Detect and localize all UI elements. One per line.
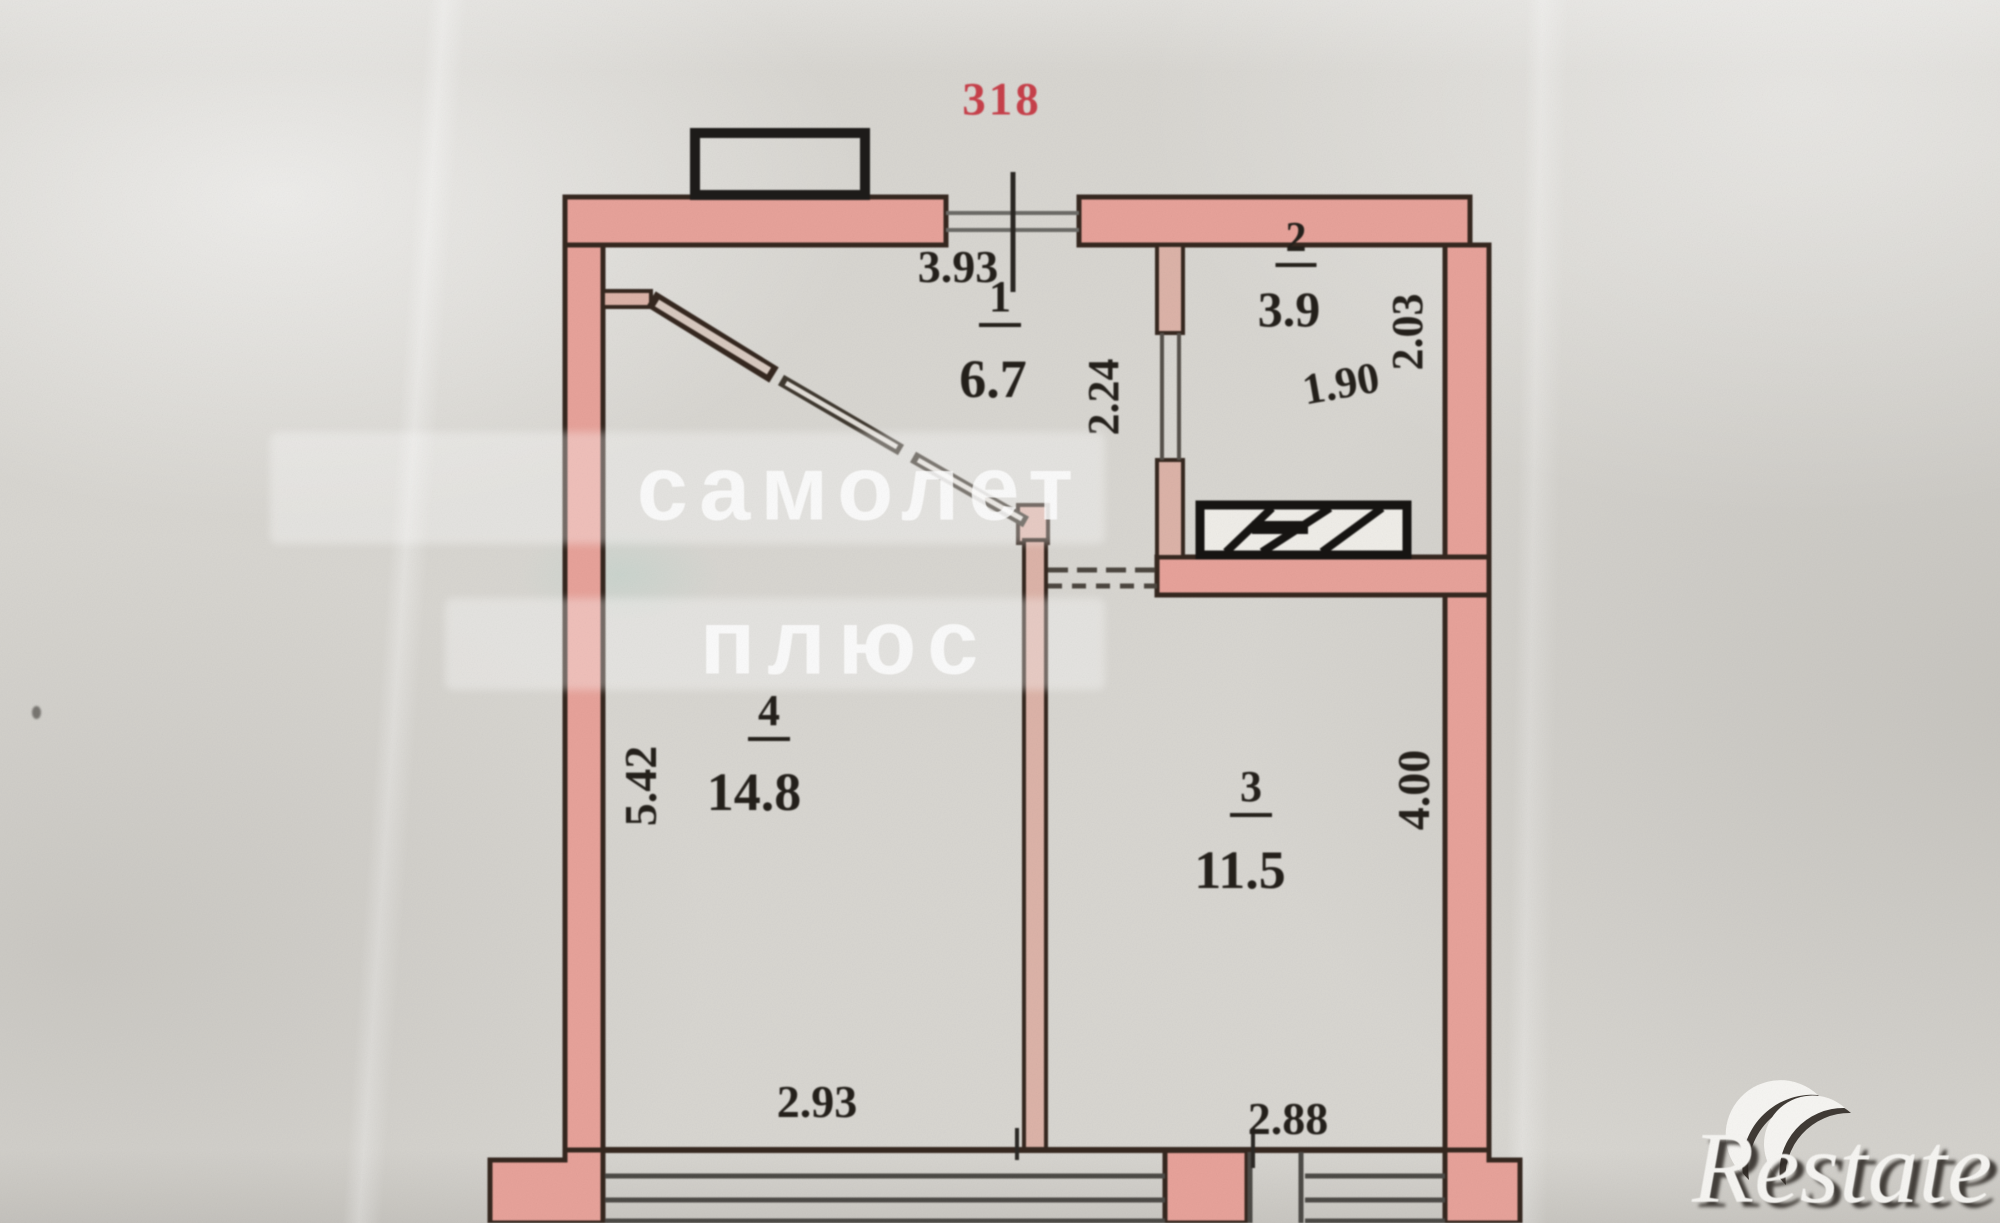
wall-top-left — [565, 197, 946, 245]
room4-area: 14.8 — [707, 765, 802, 819]
room4-number: 4 — [748, 689, 790, 741]
wall-left — [565, 245, 603, 1150]
balcony-door-room3 — [1250, 1152, 1301, 1223]
watermark-samolet-line1: самолет — [637, 437, 1083, 542]
watermark-samolet-line2: плюс — [700, 591, 991, 696]
apartment-number-label: 318 — [962, 77, 1042, 124]
room3-door — [1048, 570, 1157, 586]
diagonal-wall — [651, 299, 774, 375]
watermark-restate: Restate — [1692, 1118, 1992, 1220]
wall-hall-bath-upper — [1157, 245, 1183, 333]
room3-area: 11.5 — [1194, 843, 1286, 897]
dim-room3-width: 2.88 — [1248, 1096, 1329, 1142]
balcony-outline — [695, 133, 865, 195]
dim-room3-depth: 4.00 — [1391, 750, 1437, 831]
dim-room2-depth: 2.03 — [1386, 294, 1430, 371]
wall-room4-top — [603, 291, 651, 307]
window-room3 — [1305, 1176, 1445, 1221]
wall-under-bathroom — [1157, 557, 1489, 595]
vent-shaft — [1200, 505, 1407, 555]
room2-number: 2 — [1276, 217, 1317, 267]
window-room4 — [605, 1176, 1165, 1221]
floorplan-photo: 318 3.93 1 6.7 2.24 2 3.9 1.90 2.03 3 11… — [0, 0, 2000, 1223]
bottom-right-pier — [1445, 1150, 1520, 1223]
bottom-center-pier — [1165, 1150, 1247, 1223]
dim-hallway-depth: 2.24 — [1082, 359, 1126, 436]
paper-speck — [32, 706, 41, 719]
wall-hall-bath-lower — [1157, 460, 1183, 557]
dim-room4-width: 2.93 — [777, 1079, 858, 1125]
bottom-left-pier — [490, 1150, 603, 1223]
bathroom-door — [1162, 333, 1179, 460]
room2-area: 3.9 — [1258, 284, 1321, 334]
wall-right — [1445, 245, 1489, 1150]
wall-top-right — [1079, 197, 1470, 245]
dim-room4-depth: 5.42 — [618, 746, 664, 827]
room1-area: 6.7 — [959, 352, 1027, 406]
room1-number: 1 — [979, 275, 1021, 327]
room3-number: 3 — [1230, 765, 1272, 817]
